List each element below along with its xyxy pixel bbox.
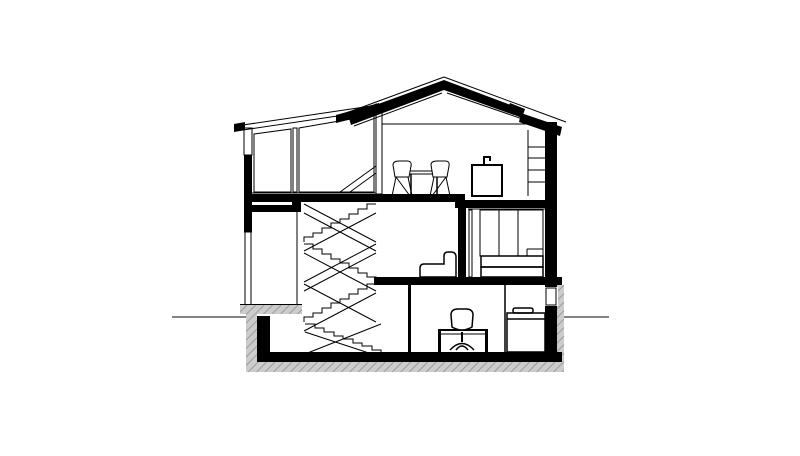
gable-roof — [338, 77, 566, 136]
sofa — [420, 252, 456, 277]
bed — [481, 256, 543, 277]
wall-shelves — [528, 130, 545, 196]
dining-chair-left — [392, 161, 412, 196]
house-section-svg — [0, 0, 800, 456]
basement-window — [544, 287, 558, 306]
stair-rail-behind — [340, 166, 376, 192]
staircase — [304, 204, 381, 356]
dining-chair-right — [430, 161, 450, 196]
right-wall — [545, 122, 557, 352]
kitchen-island — [472, 165, 502, 196]
living-room-glazing — [252, 115, 376, 193]
basement-partition-wall — [408, 285, 411, 352]
left-wall — [244, 128, 252, 232]
interior-wall — [458, 202, 466, 284]
cabinet-washer — [505, 285, 545, 352]
faucet-icon — [484, 157, 490, 165]
middle-floor-slab — [374, 277, 562, 285]
section-drawing-canvas — [0, 0, 800, 456]
